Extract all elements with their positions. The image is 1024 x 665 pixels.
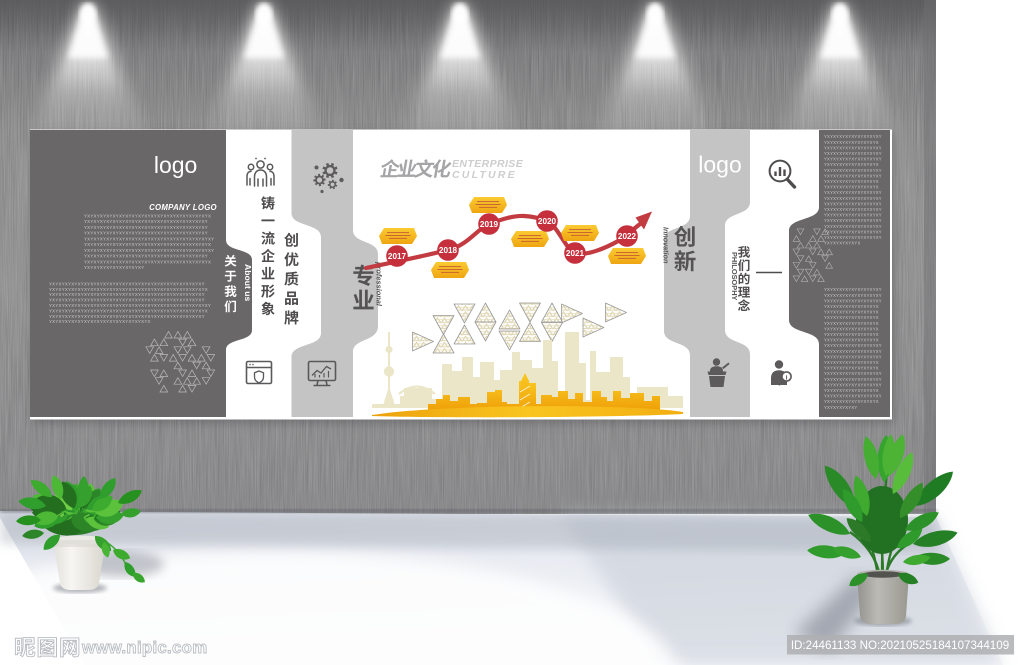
svg-text:COMPANY LOGO: COMPANY LOGO (149, 203, 217, 212)
svg-text:YXYXYXYXYXYXYXYXYX: YXYXYXYXYXYXYXYXYX (824, 360, 879, 365)
svg-text:YXYXYXYXYXYXYXYXYXYXYXYXYXYXYX: YXYXYXYXYXYXYXYXYXYXYXYXYXYXYXYXYXYXYXYX (84, 242, 211, 247)
svg-text:YXYXYXYXYXYXYXYXYX: YXYXYXYXYXYXYXYXYX (824, 310, 879, 315)
svg-text:YXYXYXYXYXYXYXYXYX: YXYXYXYXYXYXYXYXYX (824, 315, 879, 320)
svg-text:YXYXYXYXYXYXYXYXYXYXYXYXYXYXYX: YXYXYXYXYXYXYXYXYXYXYXYXYXYXYXYXYXYXYXY (84, 231, 208, 236)
svg-text:2021: 2021 (566, 249, 585, 258)
svg-text:YXYXYXYXYXYXYXYXYXY: YXYXYXYXYXYXYXYXYXY (824, 298, 882, 303)
svg-text:YXYXYXYXYXYXYXYXYXY: YXYXYXYXYXYXYXYXYXY (824, 349, 882, 354)
svg-text:www.nipic.com: www.nipic.com (81, 638, 207, 657)
svg-text:logo: logo (154, 152, 197, 178)
svg-text:YXYXYXYXYXYXYXYXYXY: YXYXYXYXYXYXYXYXYXY (824, 377, 882, 382)
svg-text:YXYXYXYXYXYXYXYXYXYXYXYXYXYXYX: YXYXYXYXYXYXYXYXYXYXYXYXYXYXYXYXYXYXYXYX… (49, 298, 205, 303)
svg-text:YXYXYXYXYXYXYXYXYXYXYXYXYXYXYX: YXYXYXYXYXYXYXYXYXYXYXYXYXYXYXYXYXYXYXYX… (49, 303, 211, 308)
svg-text:YXYXYXYXYXYXYXYXYXY: YXYXYXYXYXYXYXYXYXY (824, 151, 882, 156)
svg-text:YXYXYXYXYXYXYXYXYXY: YXYXYXYXYXYXYXYXYXY (824, 196, 882, 201)
svg-text:YXYXYXYXYXYXYXYXYXYXYXYXYXYXYX: YXYXYXYXYXYXYXYXYXYXYXYXYXYXYXYXYXYXYXY (84, 254, 208, 259)
svg-text:YXYXYXYXYXYX: YXYXYXYXYXYX (824, 241, 861, 246)
svg-text:YXYXYXYXYXYXYXYXYX: YXYXYXYXYXYXYXYXYX (824, 338, 879, 343)
svg-text:2020: 2020 (538, 217, 557, 226)
svg-text:YXYXYXYXYXYXYXYXYXY: YXYXYXYXYXYXYXYXYXY (824, 382, 882, 387)
svg-text:YXYXYXYXYXYXYXYXYXYXYXYXYXYXYX: YXYXYXYXYXYXYXYXYXYXYXYXYXYXYXYXYXYXYXY (84, 225, 208, 230)
svg-text:YXYXYXYXYXYXYXYXYX: YXYXYXYXYXYXYXYXYX (824, 326, 879, 331)
svg-text:YXYXYXYXYXYXYXYXYXY: YXYXYXYXYXYXYXYXYXY (84, 265, 144, 270)
svg-text:YXYXYXYXYXYXYXYXYXY: YXYXYXYXYXYXYXYXYXY (824, 201, 882, 206)
svg-text:YXYXYXYXYXYXYXYXYX: YXYXYXYXYXYXYXYXYX (824, 179, 879, 184)
svg-text:YXYXYXYXYXYXYXYXYXY: YXYXYXYXYXYXYXYXYXY (824, 343, 882, 348)
svg-text:YXYXYXYXYXYXYXYXYXYXYXYXYXYXYX: YXYXYXYXYXYXYXYXYXYXYXYXYXYXYXYX (49, 319, 151, 324)
svg-text:YXYXYXYXYXYXYXYXYXY: YXYXYXYXYXYXYXYXYXY (824, 229, 882, 234)
svg-text:2018: 2018 (439, 246, 458, 255)
svg-text:2022: 2022 (618, 232, 637, 241)
svg-text:YXYXYXYXYXYXYXYXYXYXYXYXYXYXYX: YXYXYXYXYXYXYXYXYXYXYXYXYXYXYXYXYXYXYXYX… (49, 314, 205, 319)
svg-text:YXYXYXYXYXYXYXYXYXY: YXYXYXYXYXYXYXYXYXY (824, 145, 882, 150)
svg-text:YXYXYXYXYXYXYXYXYXY: YXYXYXYXYXYXYXYXYXY (824, 224, 882, 229)
svg-text:YXYXYXYXYXYXYXYXYXY: YXYXYXYXYXYXYXYXYXY (824, 235, 882, 240)
svg-text:YXYXYXYXYXYXYXYXYXYXYXYXYXYXYX: YXYXYXYXYXYXYXYXYXYXYXYXYXYXYXYXYXYXYXYX… (84, 236, 214, 241)
svg-text:YXYXYXYXYXYXYXYXYX: YXYXYXYXYXYXYXYXYX (824, 321, 879, 326)
svg-text:CULTURE: CULTURE (452, 169, 517, 181)
svg-text:i: i (786, 374, 788, 381)
svg-text:YXYXYXYXYXYXYXYXYXY: YXYXYXYXYXYXYXYXYXY (824, 190, 882, 195)
svg-text:YXYXYXYXYXYXYXYXYXY: YXYXYXYXYXYXYXYXYXY (824, 287, 882, 292)
svg-text:YXYXYXYXYXYXYXYXYXY: YXYXYXYXYXYXYXYXYXY (824, 293, 882, 298)
svg-text:YXYXYXYXYXYXYXYXYXY: YXYXYXYXYXYXYXYXYXY (824, 173, 882, 178)
svg-text:YXYXYXYXYXYXYXYXYXYXYXYXYXYXYX: YXYXYXYXYXYXYXYXYXYXYXYXYXYXYXYXYXYXYXYX… (49, 281, 205, 286)
svg-text:YXYXYXYXYXYXYXYXYXY: YXYXYXYXYXYXYXYXYXY (824, 168, 882, 173)
svg-text:YXYXYXYXYXYXYXYXYX: YXYXYXYXYXYXYXYXYX (824, 388, 879, 393)
svg-text:2019: 2019 (480, 220, 499, 229)
svg-text:YXYXYXYXYXYXYXYXYX: YXYXYXYXYXYXYXYXYX (824, 366, 879, 371)
svg-text:YXYXYXYXYXYXYXYXYX: YXYXYXYXYXYXYXYXYX (824, 140, 879, 145)
svg-text:YXYXYXYXYXYXYXYXYXYXYXYXYXYXYX: YXYXYXYXYXYXYXYXYXYXYXYXYXYXYXYXYXYXYXYX (84, 213, 211, 218)
svg-text:Innovation: Innovation (662, 227, 671, 264)
svg-text:YXYXYXYXYXYXYXYXYX: YXYXYXYXYXYXYXYXYX (824, 162, 879, 167)
svg-text:YXYXYXYXYXYXYXYXYXYXYXYXYXYXYX: YXYXYXYXYXYXYXYXYXYXYXYXYXYXYXYXYXYXYXYX… (49, 308, 208, 313)
svg-text:YXYXYXYXYXYXYXYXYX: YXYXYXYXYXYXYXYXYX (824, 332, 879, 337)
svg-text:YXYXYXYXYXYXYXYXYXYXYXYXYXYXYX: YXYXYXYXYXYXYXYXYXYXYXYXYXYXYXYXYXYXYXYX… (49, 292, 205, 297)
svg-text:PHILOSOPHY: PHILOSOPHY (730, 252, 739, 301)
svg-text:YXYXYXYXYXYXYXYXYXY: YXYXYXYXYXYXYXYXYXY (824, 207, 882, 212)
svg-text:YXYXYXYXYXYXYXYXYXY: YXYXYXYXYXYXYXYXYXY (824, 213, 882, 218)
svg-text:YXYXYXYXYXYXYXYXYXY: YXYXYXYXYXYXYXYXYXY (824, 394, 882, 399)
svg-text:YXYXYXYXYXYXYXYXYXYXYXYXYXYXYX: YXYXYXYXYXYXYXYXYXYXYXYXYXYXYXYXYXYXYXYX (84, 259, 211, 264)
svg-text:ID:24461133 NO:202105251841073: ID:24461133 NO:20210525184107344109 (791, 639, 1009, 652)
svg-text:YXYXYXYXYXYXYXYXYXY: YXYXYXYXYXYXYXYXYXY (824, 371, 882, 376)
svg-text:2017: 2017 (388, 252, 407, 261)
svg-text:YXYXYXYXYXYXYXYXYXYXYXYXYXYXYX: YXYXYXYXYXYXYXYXYXYXYXYXYXYXYXYXYXYXYXYX… (84, 248, 214, 253)
svg-text:About us: About us (243, 264, 253, 301)
svg-text:YXYXYXYXYXYXYXYXYXYXYXYXYXYXYX: YXYXYXYXYXYXYXYXYXYXYXYXYXYXYXYXYXYXYXY (84, 219, 208, 224)
svg-text:YXYXYXYXYXYXYXYXYXY: YXYXYXYXYXYXYXYXYXY (824, 157, 882, 162)
svg-text:YXYXYXYXYXYXYXYXYXY: YXYXYXYXYXYXYXYXYXY (824, 354, 882, 359)
svg-text:YXYXYXYXYXYXYXYXYXYXYXYXYXYXYX: YXYXYXYXYXYXYXYXYXYXYXYXYXYXYXYXYXYXYXYX… (49, 287, 208, 292)
svg-text:YXYXYXYXYXYXYXYXYXY: YXYXYXYXYXYXYXYXYXY (824, 134, 882, 139)
svg-text:logo: logo (698, 152, 741, 178)
svg-text:YXYXYXYXYXY: YXYXYXYXYXY (824, 405, 857, 410)
svg-text:YXYXYXYXYXYXYXYXYXY: YXYXYXYXYXYXYXYXYXY (824, 218, 882, 223)
svg-text:YXYXYXYXYXYXYXYXYX: YXYXYXYXYXYXYXYXYX (824, 185, 879, 190)
svg-text:YXYXYXYXYXYXYXYXYX: YXYXYXYXYXYXYXYXYX (824, 399, 879, 404)
svg-text:YXYXYXYXYXYXYXYXYX: YXYXYXYXYXYXYXYXYX (824, 304, 879, 309)
